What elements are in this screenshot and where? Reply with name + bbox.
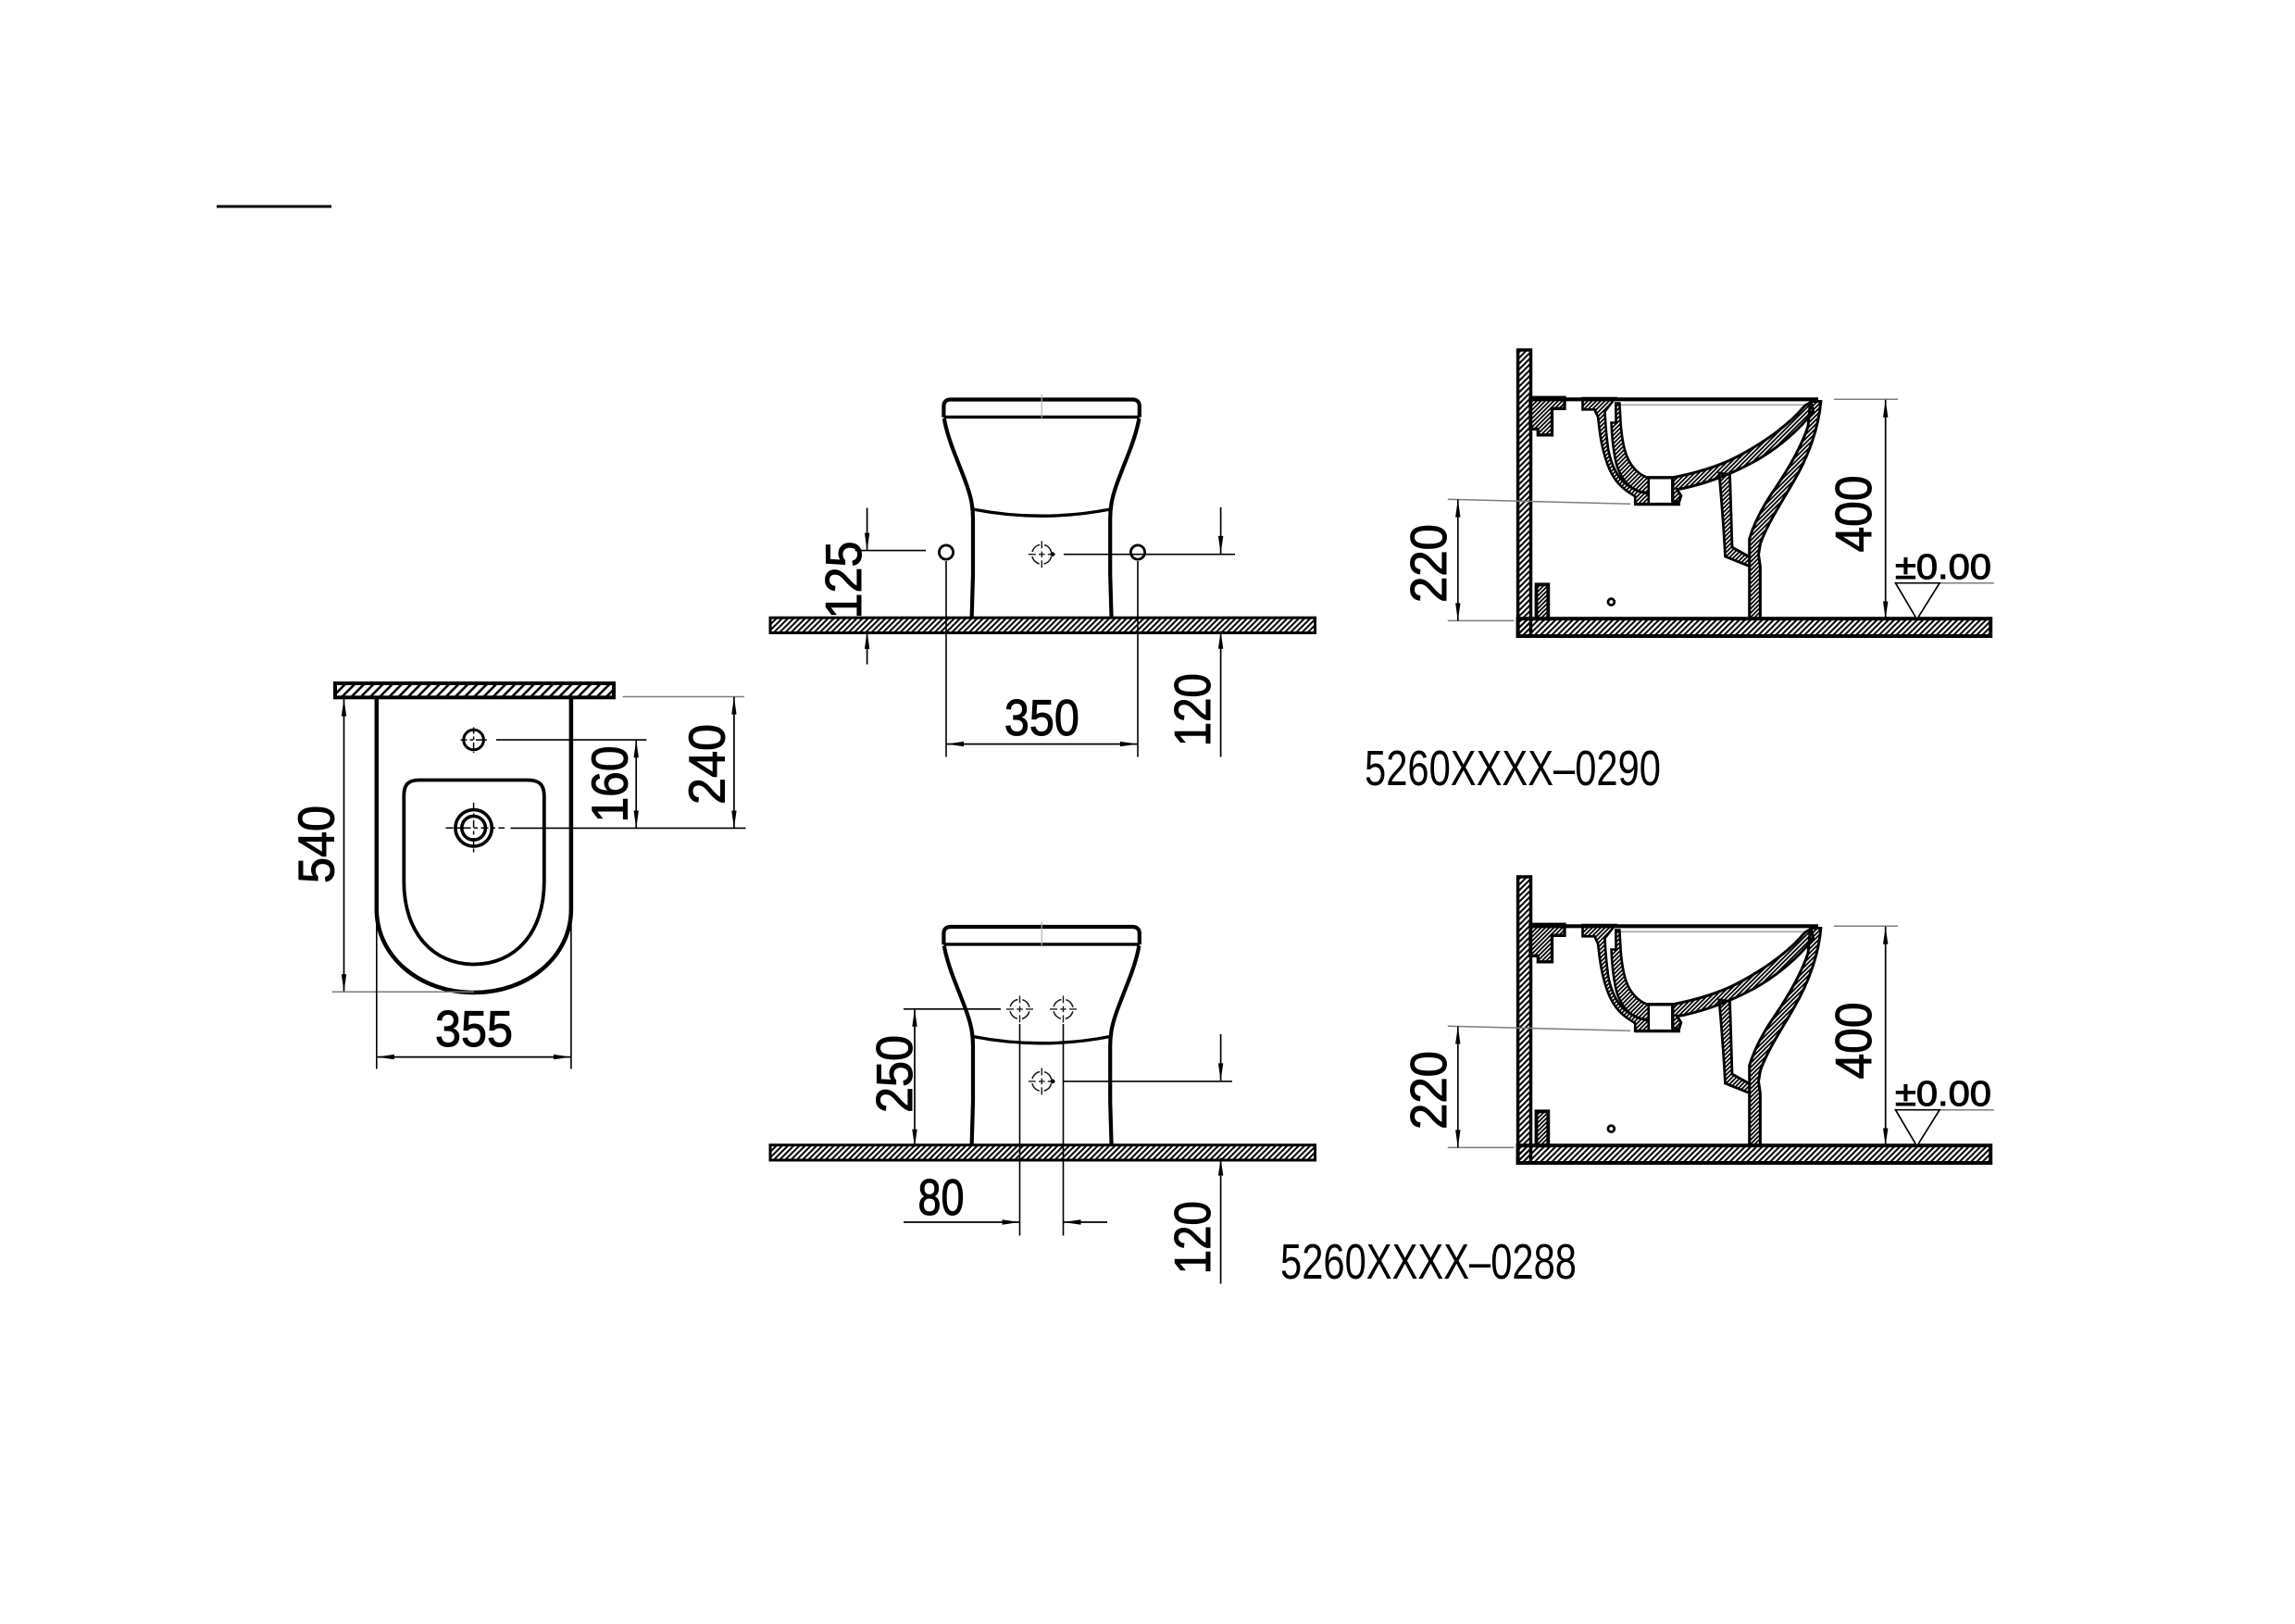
svg-text:540: 540 [288,806,345,883]
svg-text:350: 350 [1004,689,1079,746]
svg-text:400: 400 [1825,476,1882,553]
svg-text:250: 250 [866,1035,923,1113]
svg-text:160: 160 [581,746,639,823]
svg-text:±0.00: ±0.00 [1895,548,1991,587]
svg-text:120: 120 [1164,1201,1221,1274]
svg-text:355: 355 [435,1000,513,1057]
svg-text:120: 120 [1164,673,1221,746]
svg-text:5260XXXX–0290: 5260XXXX–0290 [1365,741,1661,796]
svg-text:220: 220 [1400,524,1457,603]
svg-text:5260XXXX–0288: 5260XXXX–0288 [1280,1234,1577,1290]
svg-text:240: 240 [679,724,736,805]
svg-text:125: 125 [815,542,872,619]
svg-text:80: 80 [918,1168,965,1226]
